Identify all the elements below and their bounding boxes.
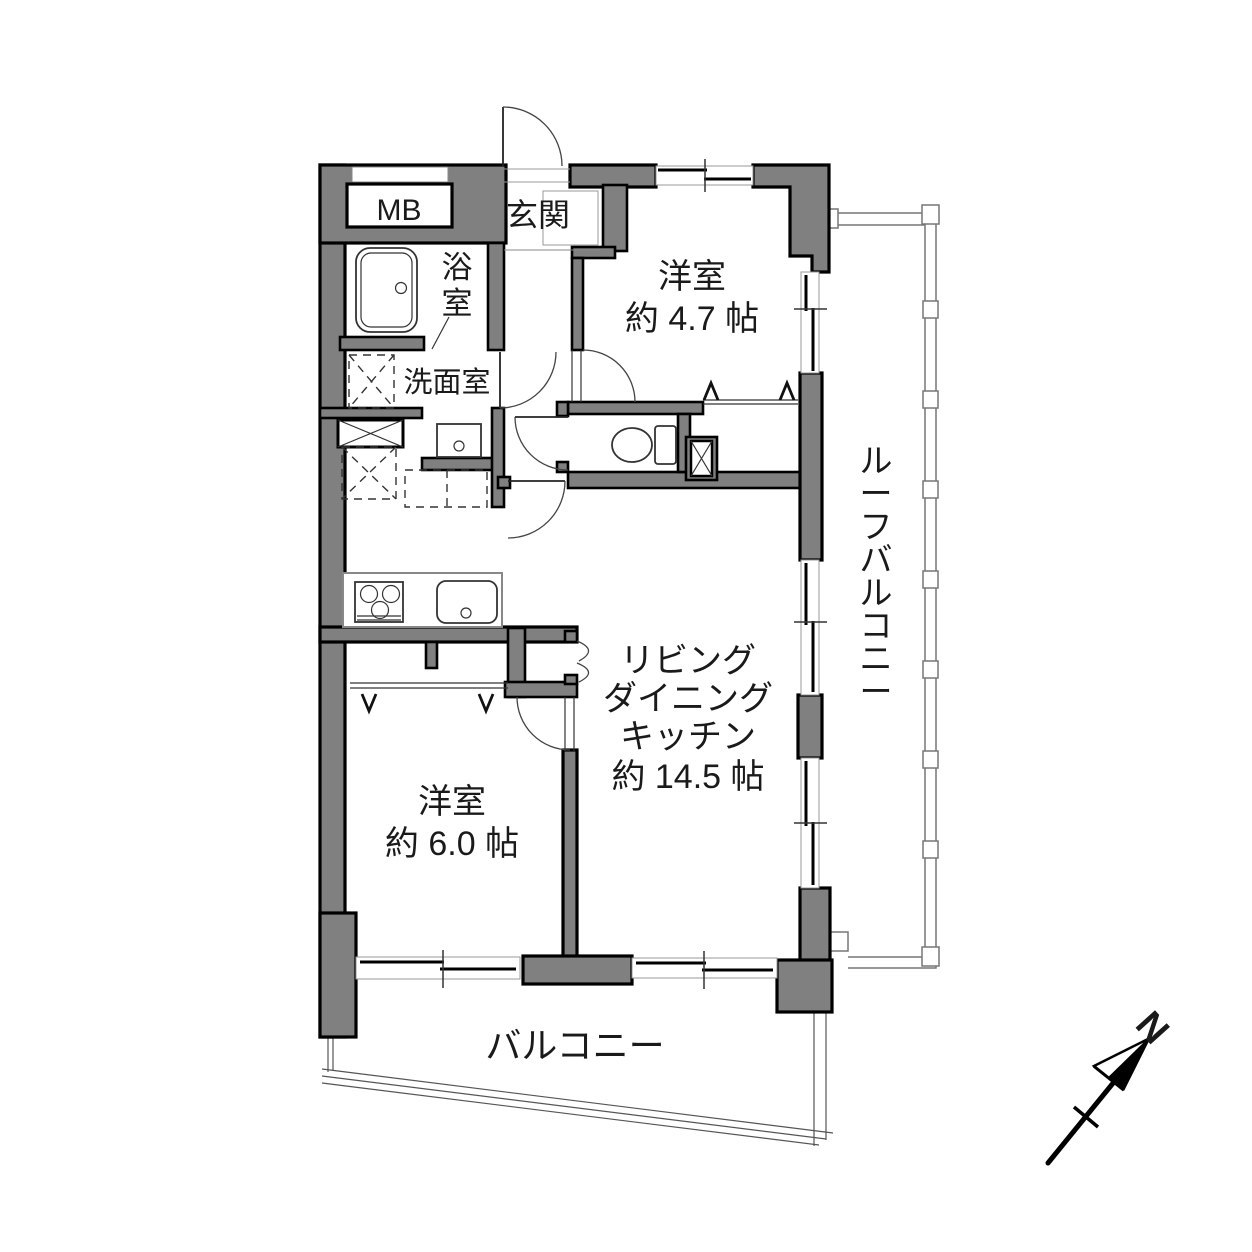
bedroom-small: 洋室 約 4.7 帖	[572, 258, 798, 404]
bifold-door	[577, 663, 589, 682]
bifold-door	[577, 641, 589, 661]
wall-bedroom-ldk	[563, 750, 577, 958]
bathroom: 浴室	[356, 248, 473, 349]
kitchen-sink	[437, 581, 497, 623]
washroom: 洗面室	[338, 355, 491, 507]
wall-left	[320, 165, 345, 1037]
wall-pillar-top-right	[753, 165, 829, 272]
ldk: リビング ダイニング キッチン 約 14.5 帖	[603, 642, 773, 796]
storage-box	[338, 420, 403, 447]
balcony-label: バルコニー	[485, 1025, 664, 1066]
closet-fold-mark	[479, 694, 493, 711]
pipe-space	[691, 441, 712, 476]
wall-toilet-top	[568, 402, 703, 414]
wall-bottom-pier	[523, 956, 632, 984]
wall-closet-top	[320, 627, 577, 642]
meter-box: MB	[347, 167, 452, 227]
railing-attach-bottom	[830, 932, 848, 951]
floor-plan-canvas: MB 玄関 浴室 洗面室	[0, 0, 1252, 1252]
bathroom-label: 浴室	[442, 250, 473, 321]
bedroom-main: 洋室 約 6.0 帖	[385, 697, 574, 863]
bedroom-main-door-swing	[517, 697, 570, 750]
washroom-door-swing	[500, 352, 556, 408]
ldk-door-swing	[508, 481, 565, 538]
closet-fold-mark	[704, 383, 718, 400]
washbasin	[437, 424, 481, 457]
balcony-railing	[322, 996, 833, 1146]
wall-corner-bottom-right	[777, 960, 832, 1012]
bathtub	[356, 248, 417, 332]
toilet-room	[515, 417, 676, 470]
wall-top-mid	[570, 165, 656, 187]
wall-entrance-right	[603, 185, 627, 251]
wall-right-b	[798, 695, 822, 758]
bedroom-main-closet	[350, 641, 589, 711]
ldk-label-1: リビング	[620, 642, 756, 680]
washing-machine-space	[349, 355, 394, 408]
wall-closet-divider	[426, 642, 437, 668]
closet-fold-mark	[780, 383, 794, 400]
wall-bath-bottom	[340, 337, 424, 350]
corridor-doors	[500, 352, 565, 538]
closet-fold-mark	[362, 694, 376, 711]
roof-balcony-label: ルーフバルコニー	[860, 442, 893, 710]
ldk-size: 約 14.5 帖	[611, 758, 764, 796]
washroom-label: 洗面室	[403, 366, 490, 399]
bedroom-main-name: 洋室	[418, 783, 486, 821]
bedroom-main-size: 約 6.0 帖	[385, 825, 519, 863]
toilet-tank	[655, 426, 676, 464]
ldk-label-2: ダイニング	[603, 680, 773, 718]
ldk-label-3: キッチン	[620, 718, 756, 756]
wall-right-a	[800, 373, 822, 560]
wall-right-c	[800, 888, 830, 962]
bedroom-small-door-swing	[583, 350, 635, 402]
entrance-label: 玄関	[506, 197, 570, 233]
wall-bath-right	[488, 243, 504, 350]
wall-left-foot	[320, 913, 356, 1037]
meter-box-label: MB	[377, 194, 422, 227]
stove	[355, 582, 403, 622]
north-arrow: N	[1048, 1004, 1177, 1163]
bedroom-small-name: 洋室	[658, 258, 726, 296]
kitchen	[343, 573, 502, 627]
toilet-bowl	[612, 428, 652, 462]
entrance-door-swing	[503, 107, 562, 166]
bedroom-small-size: 約 4.7 帖	[625, 300, 759, 338]
